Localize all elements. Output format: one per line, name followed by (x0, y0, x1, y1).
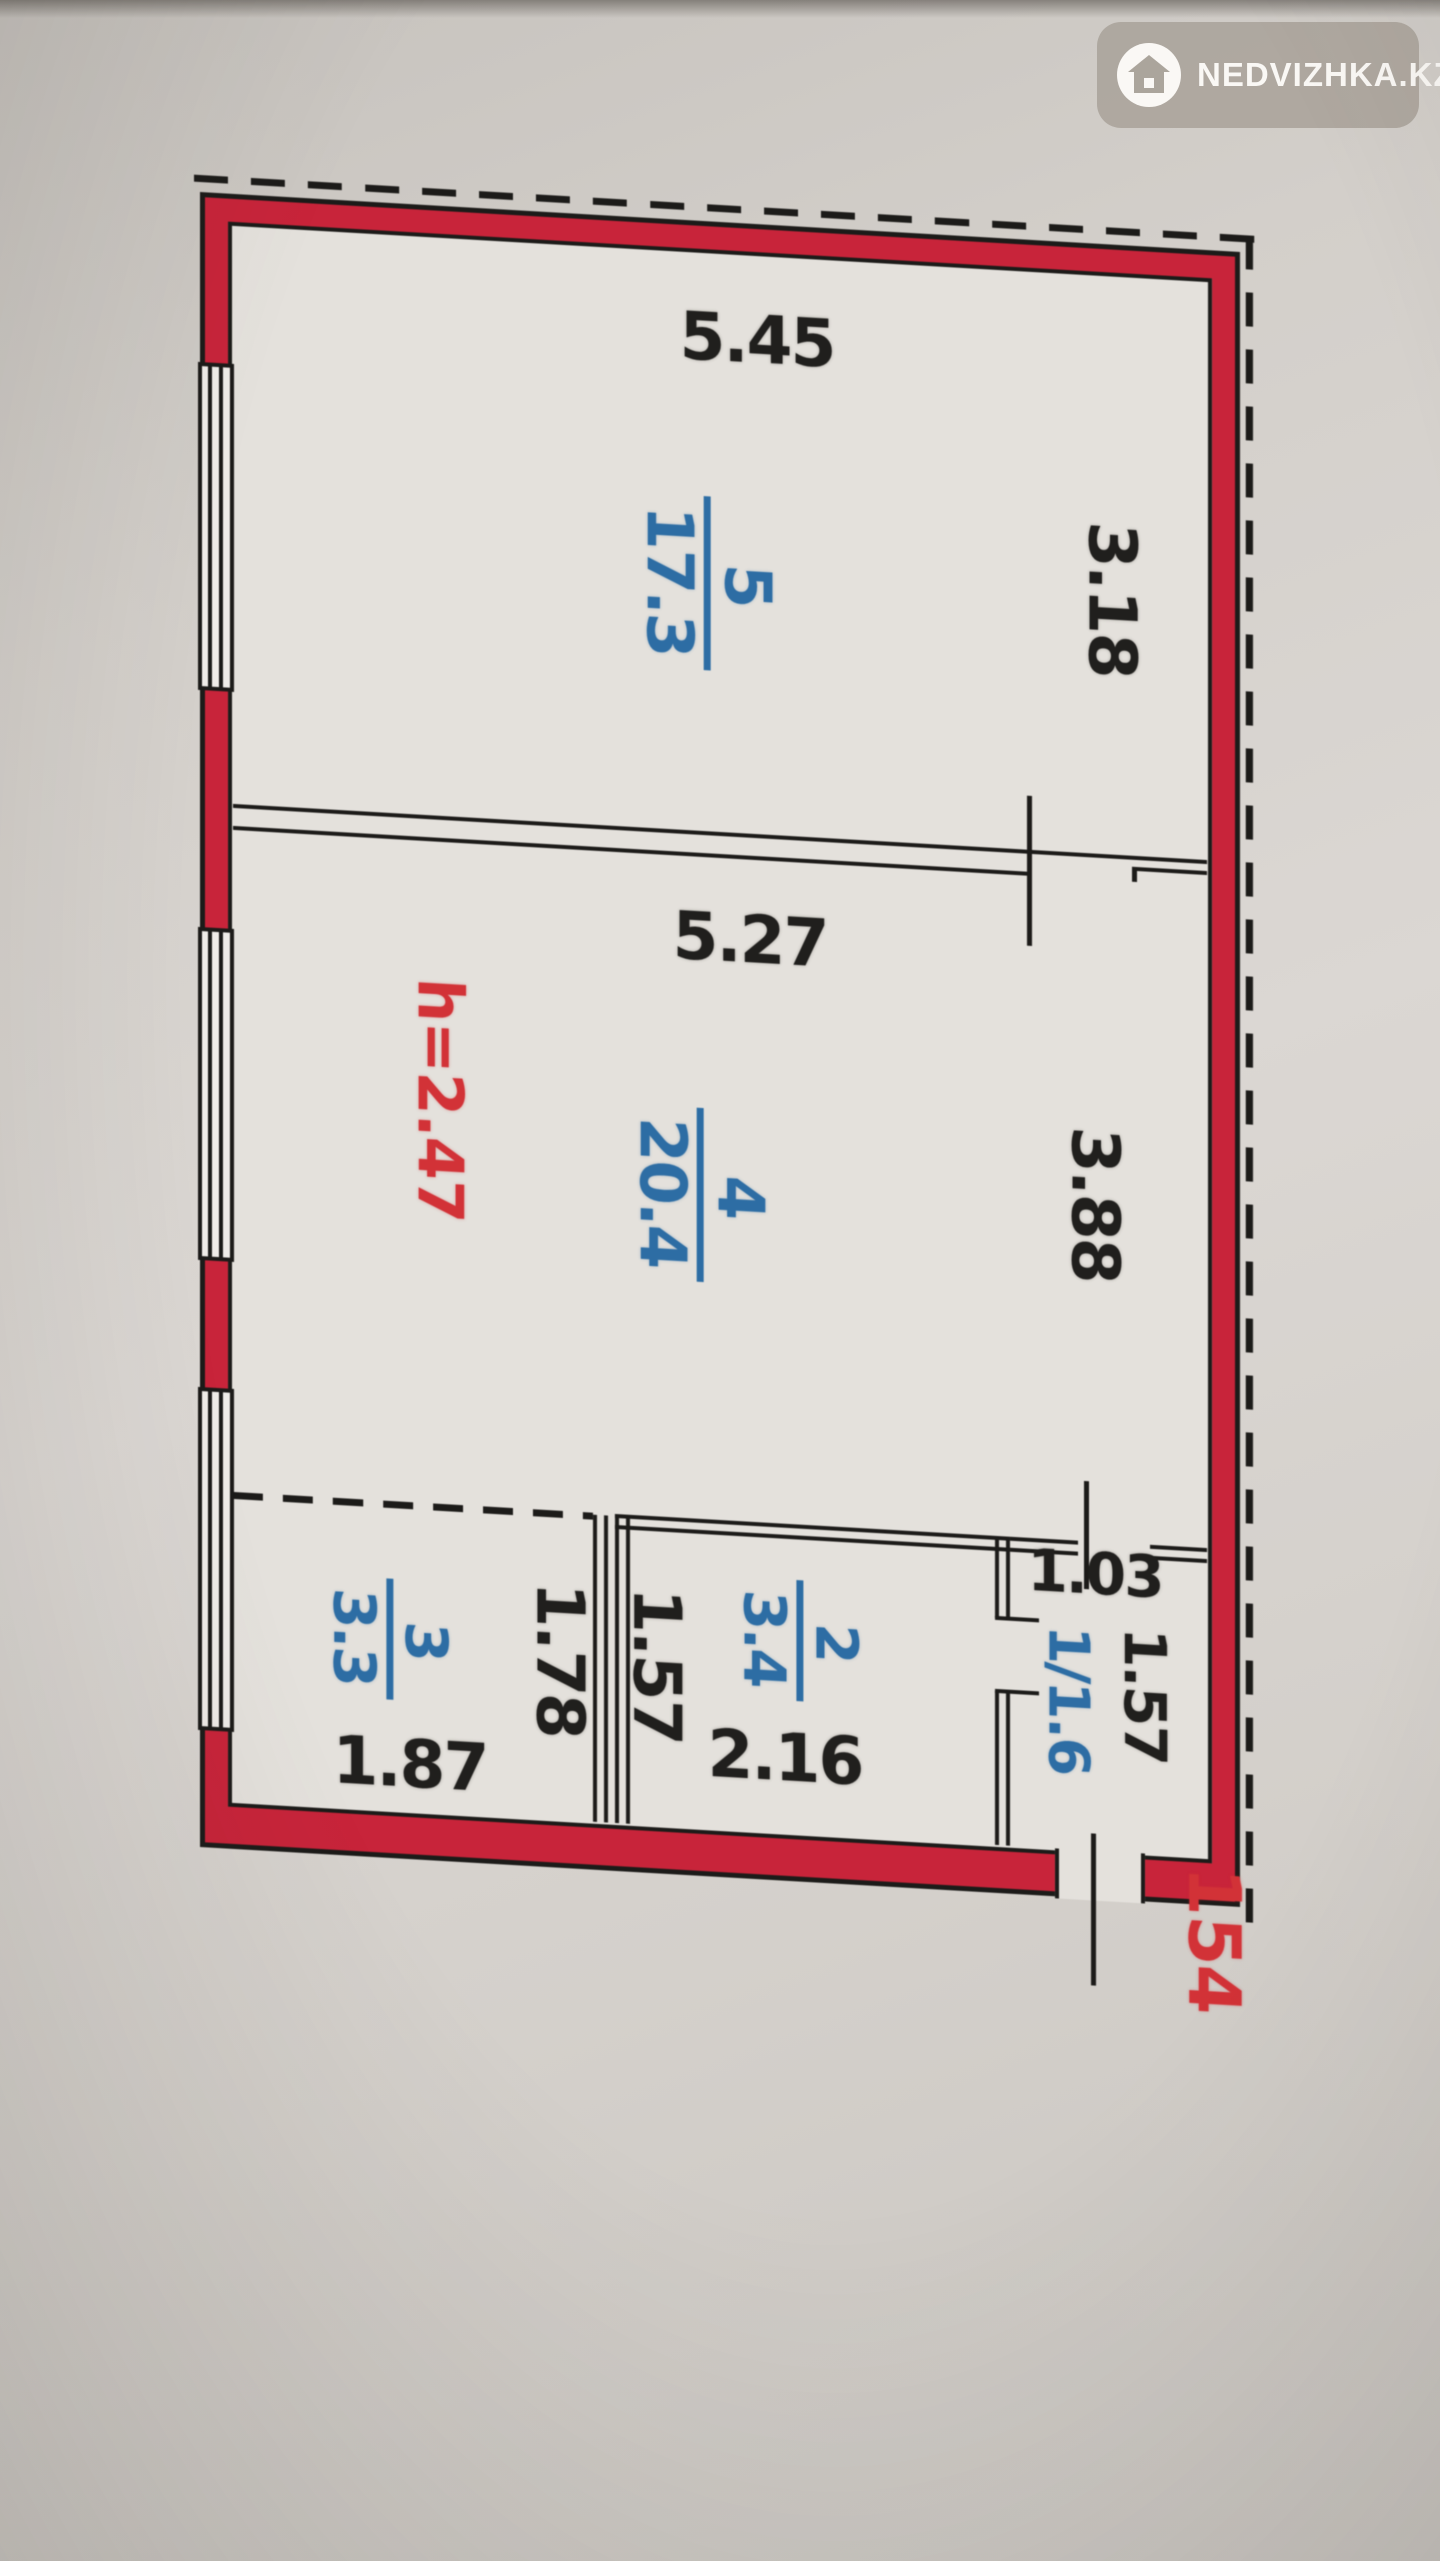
room-5-number: 5 (704, 496, 780, 674)
floor-plan: 5.45 3.18 5.27 3.88 1.87 1.78 1.57 2.16 … (200, 192, 1240, 1907)
room-2-number: 2 (797, 1580, 867, 1705)
ceiling-height-note: h=2.47 (404, 976, 477, 1223)
room-4-number: 4 (697, 1108, 773, 1286)
wall-room2-right-upper (995, 1536, 1010, 1619)
house-icon (1117, 43, 1181, 107)
dimension-room5-depth: 3.18 (1074, 520, 1151, 679)
room-1-label: 1/1.6 (1036, 1624, 1101, 1776)
room-4-area: 20.4 (627, 1104, 696, 1282)
photo-top-shadow (0, 0, 1440, 18)
watermark-brand-text: NEDVIZHKA.KZ (1197, 56, 1440, 94)
room-2-area: 3.4 (734, 1576, 797, 1700)
dimension-room5-width: 5.45 (680, 297, 835, 383)
unit-number-note: 154 (1172, 1864, 1256, 2016)
dimension-room3-width: 1.87 (333, 1721, 488, 1807)
room-3-number: 3 (387, 1578, 457, 1703)
room-5-area: 17.3 (634, 492, 703, 670)
dimension-room4-depth: 3.88 (1057, 1125, 1134, 1284)
watermark-badge: NEDVIZHKA.KZ (1097, 22, 1419, 128)
entrance-door-tick (1091, 1833, 1096, 1985)
window-icon (198, 927, 234, 1262)
room-3-label: 3 3.3 (324, 1575, 457, 1703)
dimension-room1-depth: 1.57 (1111, 1626, 1179, 1765)
window-icon (198, 362, 234, 692)
photo-of-floor-plan: 5.45 3.18 5.27 3.88 1.87 1.78 1.57 2.16 … (0, 0, 1440, 2561)
dimension-room2-width: 2.16 (708, 1715, 863, 1801)
window-icon (198, 1387, 234, 1732)
entrance-door-opening (1055, 1848, 1145, 1903)
wall-room2-right-lower (995, 1691, 1010, 1846)
room-5-label: 5 17.3 (634, 492, 779, 674)
dimension-room4-width: 5.27 (673, 897, 828, 983)
dimension-room1-width: 1.03 (1027, 1536, 1162, 1612)
room-3-area: 3.3 (324, 1575, 387, 1699)
room-4-label: 4 20.4 (627, 1104, 772, 1286)
dimension-room2-height: 1.57 (619, 1586, 696, 1745)
door-jamb-tick (1027, 796, 1032, 946)
door-jamb-connector (1132, 867, 1137, 882)
outer-dashed-line-right (1246, 235, 1253, 1925)
room-2-label: 2 3.4 (734, 1576, 867, 1704)
dimension-room3-depth: 1.78 (522, 1580, 599, 1739)
